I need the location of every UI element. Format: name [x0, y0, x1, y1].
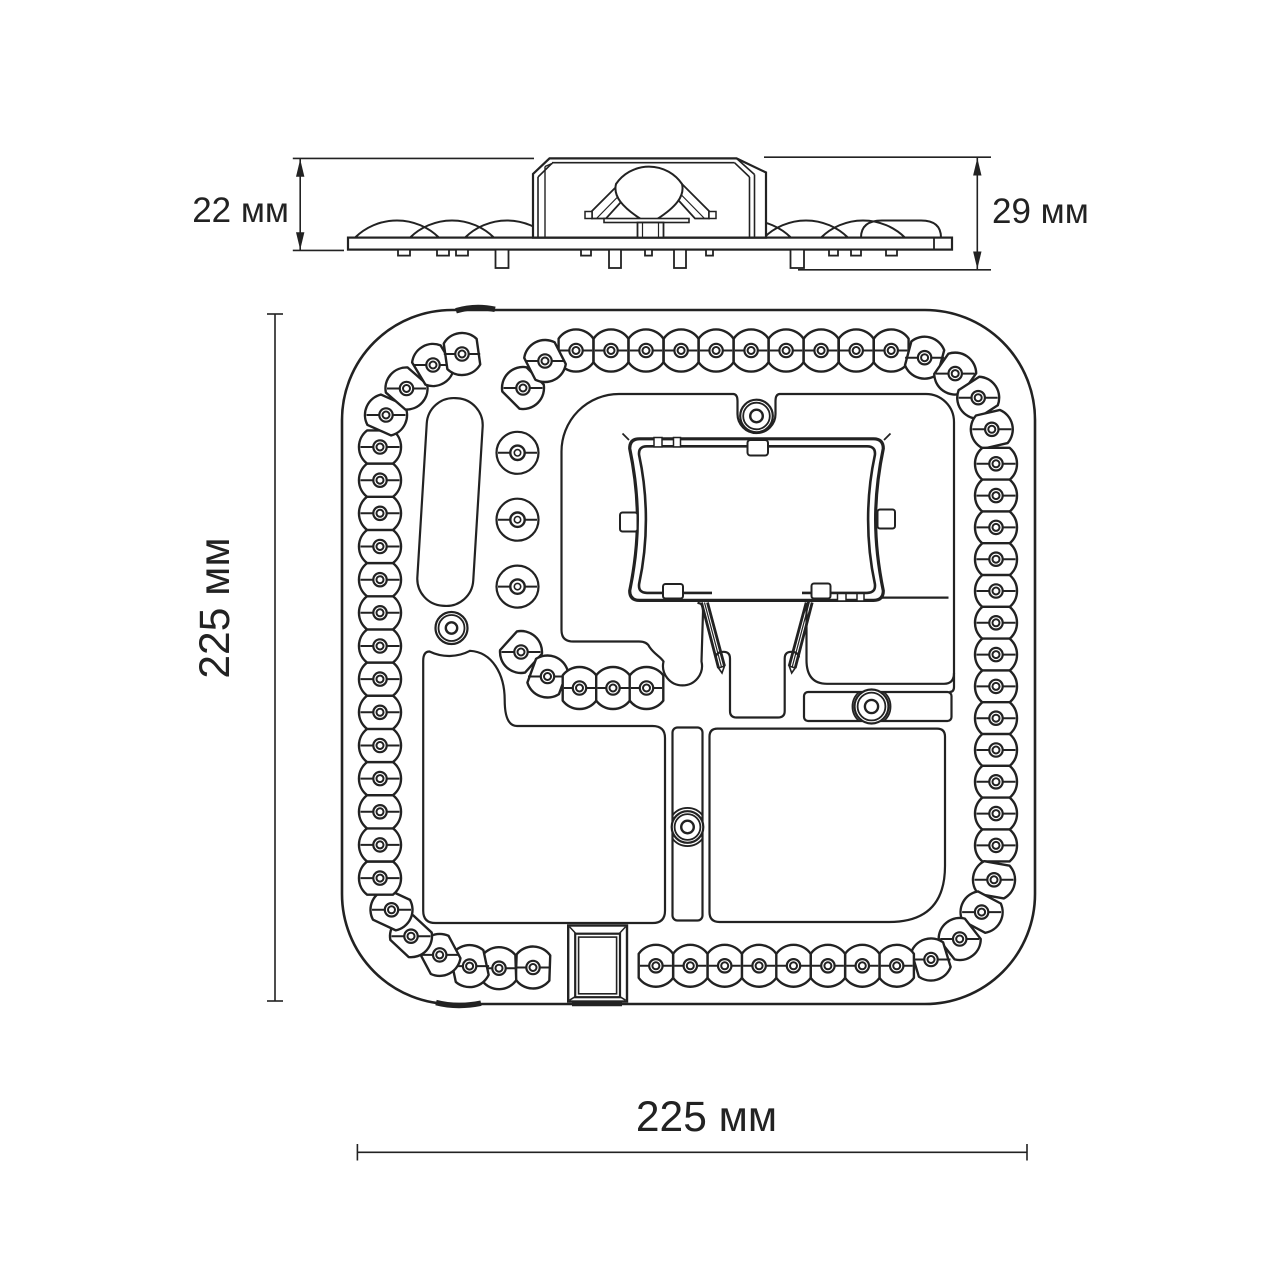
svg-text:22 мм: 22 мм — [192, 191, 289, 230]
svg-text:29 мм: 29 мм — [992, 192, 1089, 231]
svg-text:225 мм: 225 мм — [192, 537, 239, 678]
svg-text:225 мм: 225 мм — [636, 1094, 777, 1141]
